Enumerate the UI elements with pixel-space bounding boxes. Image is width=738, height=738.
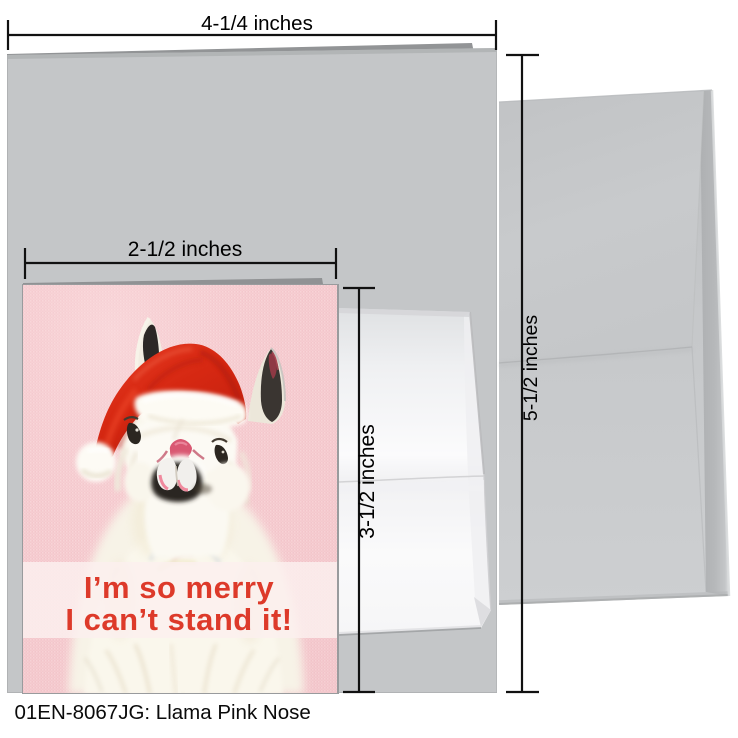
- svg-text:5-1/2 inches: 5-1/2 inches: [520, 315, 542, 421]
- svg-text:I can’t stand it!: I can’t stand it!: [65, 602, 292, 637]
- svg-text:01EN-8067JG: Llama Pink Nose: 01EN-8067JG: Llama Pink Nose: [15, 701, 311, 724]
- svg-text:3-1/2 inches: 3-1/2 inches: [356, 424, 379, 538]
- svg-text:I’m so merry: I’m so merry: [84, 570, 275, 605]
- svg-text:4-1/4 inches: 4-1/4 inches: [201, 12, 313, 35]
- svg-text:2-1/2 inches: 2-1/2 inches: [128, 238, 242, 261]
